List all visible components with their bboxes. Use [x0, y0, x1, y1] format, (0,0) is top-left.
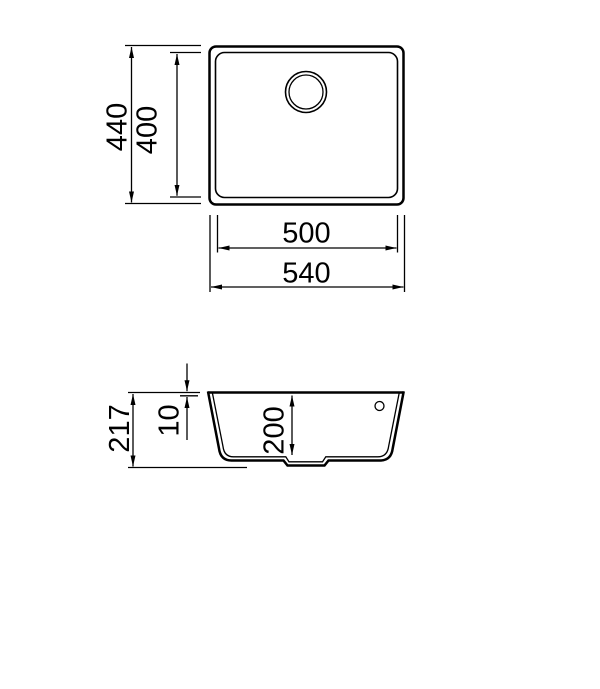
- dim-label-total-height: 217: [104, 404, 136, 452]
- dim-label-bowl-inner-depth: 200: [259, 406, 291, 454]
- dim-label-bowl-depth: 400: [132, 106, 164, 154]
- dim-bowl-width: 500: [218, 215, 398, 253]
- overflow-hole: [375, 402, 384, 411]
- sink-bowl-outline: [216, 53, 398, 198]
- drain-hole-inner: [289, 75, 323, 109]
- section-inner-contour: [212, 393, 399, 462]
- drawing-canvas: 440 400 500 540: [0, 0, 600, 689]
- dim-label-overall-width: 540: [282, 258, 330, 290]
- dim-bowl-depth: 400: [132, 53, 202, 198]
- dim-label-overall-depth: 440: [102, 103, 134, 151]
- section-view: 217 10 200: [104, 364, 405, 468]
- drain-hole-outer: [286, 72, 327, 113]
- dim-bowl-inner-depth: 200: [259, 396, 293, 456]
- sink-technical-drawing: 440 400 500 540: [0, 0, 600, 689]
- sink-outer-outline: [210, 47, 404, 205]
- top-view: 440 400 500 540: [102, 46, 405, 293]
- dim-label-bowl-width: 500: [282, 218, 330, 250]
- dim-rim-thickness: 10: [154, 364, 199, 441]
- section-outer-contour: [208, 392, 404, 466]
- dim-label-rim-thickness: 10: [154, 404, 186, 436]
